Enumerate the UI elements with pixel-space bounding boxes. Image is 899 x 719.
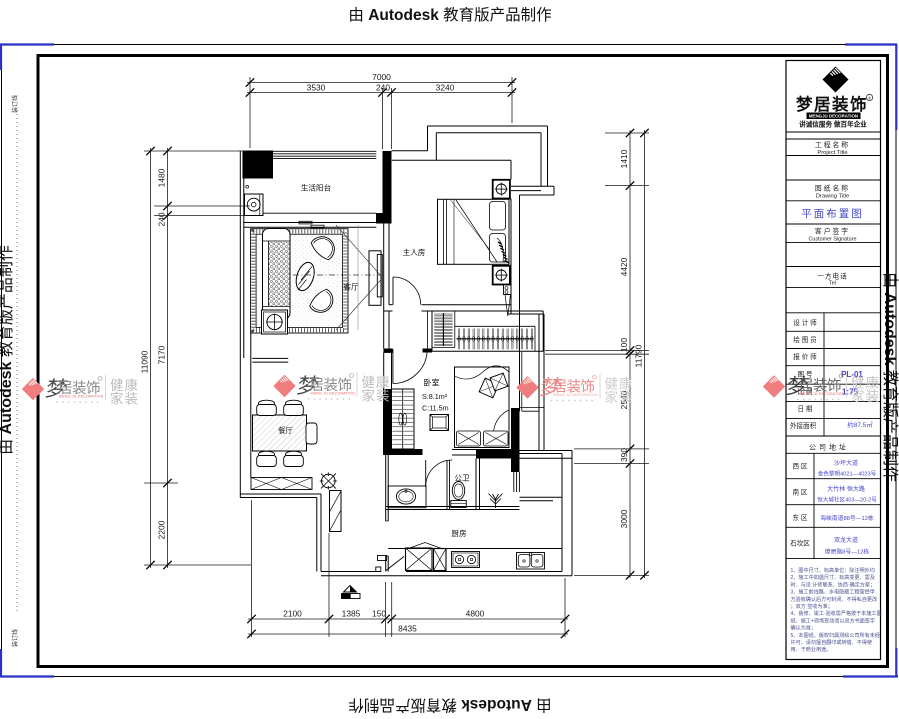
svg-text:石坎区: 石坎区 — [790, 539, 810, 548]
svg-text:方验收确认后方可封闭、不得私自更改: 方验收确认后方可封闭、不得私自更改 — [791, 596, 878, 603]
svg-text:生活阳台: 生活阳台 — [301, 183, 332, 193]
svg-text:8435: 8435 — [398, 624, 417, 634]
svg-text:S:8.1m²: S:8.1m² — [422, 392, 448, 401]
svg-text:MENGJU DECORATION: MENGJU DECORATION — [809, 114, 858, 119]
svg-text:公司地址: 公司地址 — [809, 443, 849, 452]
svg-text:5、本图纸、版权归属测绘公司所有未经: 5、本图纸、版权归属测绘公司所有未经 — [791, 632, 880, 639]
svg-text:家装: 家装 — [362, 388, 391, 404]
svg-text:由 Autodesk 教育版产品制作: 由 Autodesk 教育版产品制作 — [348, 696, 551, 714]
svg-text:讲诚信服务 做百年企业: 讲诚信服务 做百年企业 — [799, 120, 867, 129]
svg-text:设 计 师: 设 计 师 — [793, 318, 817, 327]
svg-text:梦居装饰: 梦居装饰 — [796, 94, 868, 114]
svg-text:3000: 3000 — [619, 509, 629, 528]
svg-text:150: 150 — [372, 609, 386, 619]
svg-text:装订线: 装订线 — [11, 629, 19, 647]
svg-text:时、与设 计师联系、协商·确定方案；: 时、与设 计师联系、协商·确定方案； — [791, 581, 876, 588]
svg-text:1385: 1385 — [342, 609, 361, 619]
svg-text:7170: 7170 — [156, 345, 166, 364]
svg-text:1、图中尺寸、标高单位：除注明外均: 1、图中尺寸、标高单位：除注明外均 — [791, 567, 875, 574]
svg-text:客户签字: 客户签字 — [815, 227, 850, 236]
svg-text:家装: 家装 — [110, 391, 139, 407]
svg-text:C:11.5m: C:11.5m — [422, 404, 449, 413]
svg-text:2、施工中如遇尺寸、标高变更、需及: 2、施工中如遇尺寸、标高变更、需及 — [791, 574, 875, 581]
svg-text:4、装修、竣工·验收需严格按于本施工图: 4、装修、竣工·验收需严格按于本施工图 — [791, 610, 882, 617]
svg-text:绘 图 员: 绘 图 员 — [793, 335, 817, 344]
svg-text:沙坪大道: 沙坪大道 — [834, 459, 858, 467]
svg-text:2200: 2200 — [156, 520, 166, 539]
svg-text:金色黎明4021—4023号: 金色黎明4021—4023号 — [818, 470, 877, 478]
svg-text:家装: 家装 — [605, 389, 634, 405]
svg-text:报 价 师: 报 价 师 — [793, 352, 817, 361]
svg-text:外接面积: 外接面积 — [790, 421, 817, 430]
svg-text:双龙大道: 双龙大道 — [834, 536, 858, 544]
svg-text:主人房: 主人房 — [403, 247, 426, 257]
svg-text:Project Title: Project Title — [817, 150, 847, 156]
svg-text:240: 240 — [376, 82, 390, 92]
svg-text:由 Autodesk 教育版产品制作: 由 Autodesk 教育版产品制作 — [348, 6, 551, 24]
svg-text:MENG JU DECORATION: MENG JU DECORATION — [554, 393, 599, 397]
svg-text:西 区: 西 区 — [792, 463, 807, 471]
svg-text:11090: 11090 — [139, 350, 149, 373]
svg-text:大竹林 恒大路: 大竹林 恒大路 — [827, 485, 865, 493]
svg-text:家装: 家装 — [851, 388, 880, 404]
svg-text:客厅: 客厅 — [343, 282, 359, 292]
svg-text:图纸名称: 图纸名称 — [815, 184, 850, 193]
svg-text:240: 240 — [156, 212, 166, 226]
svg-text:由 Autodesk 教育版产品制作: 由 Autodesk 教育版产品制作 — [0, 245, 15, 455]
svg-text:4420: 4420 — [619, 257, 629, 276]
svg-text:Tel: Tel — [829, 281, 836, 287]
svg-text:7000: 7000 — [372, 72, 391, 82]
svg-text:1480: 1480 — [156, 168, 166, 187]
svg-text:4800: 4800 — [466, 609, 485, 619]
svg-text:用、于商业用途。: 用、于商业用途。 — [791, 646, 832, 653]
svg-text:装订线: 装订线 — [11, 95, 19, 113]
svg-text:一方电话: 一方电话 — [817, 272, 847, 281]
svg-text:海峡南道88号—12栋: 海峡南道88号—12栋 — [820, 514, 874, 522]
svg-text:许可、请勿擅自翻印或转借、不得使: 许可、请勿擅自翻印或转借、不得使 — [791, 639, 873, 646]
svg-text:3、施工前线路、水电隐蔽工程需经甲: 3、施工前线路、水电隐蔽工程需经甲 — [791, 589, 875, 596]
svg-text:确认为准；: 确认为准； — [791, 625, 816, 632]
svg-text:3240: 3240 — [436, 82, 455, 92]
svg-text:工程名称: 工程名称 — [815, 140, 850, 149]
svg-text:Drawing Title: Drawing Title — [816, 194, 850, 200]
svg-text:东 区: 东 区 — [792, 513, 807, 522]
svg-text:南 区: 南 区 — [792, 488, 807, 497]
svg-text:厨房: 厨房 — [451, 528, 466, 538]
svg-text:卧室: 卧室 — [424, 378, 440, 388]
svg-text:餐厅: 餐厅 — [278, 426, 293, 435]
svg-text:燎原路8号—12栋: 燎原路8号—12栋 — [825, 548, 870, 556]
svg-text:Customer Signature: Customer Signature — [809, 237, 857, 243]
svg-text:约87.5㎡: 约87.5㎡ — [847, 420, 873, 429]
svg-text:公卫: 公卫 — [454, 474, 470, 483]
svg-text:11790: 11790 — [633, 344, 643, 367]
svg-text:2100: 2100 — [283, 609, 302, 619]
svg-text:3530: 3530 — [307, 82, 326, 92]
svg-text:恒大城社区403—20-2号: 恒大城社区403—20-2号 — [817, 496, 877, 504]
svg-text:平面布置图: 平面布置图 — [801, 208, 864, 220]
svg-text:MENG JU DECORATION: MENG JU DECORATION — [800, 392, 845, 396]
svg-text:MENG JU DECORATION: MENG JU DECORATION — [311, 392, 356, 396]
svg-text:纸、施工+现场变动须以双方书面签字: 纸、施工+现场变动须以双方书面签字 — [791, 617, 875, 624]
svg-text:1410: 1410 — [619, 149, 629, 168]
svg-text:日 期: 日 期 — [797, 405, 812, 413]
svg-text:390: 390 — [619, 448, 629, 462]
svg-text:MENG JU DECORATION: MENG JU DECORATION — [59, 395, 104, 399]
svg-text:；双方 签收为准；: ；双方 签收为准； — [791, 603, 833, 610]
svg-text:100: 100 — [619, 338, 629, 352]
